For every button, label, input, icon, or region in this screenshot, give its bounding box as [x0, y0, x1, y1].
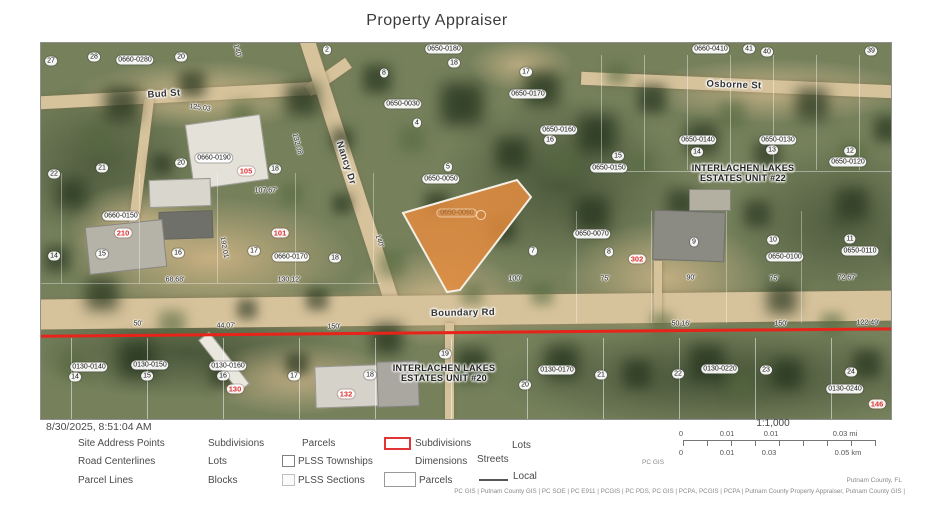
legend-local: Local: [513, 471, 537, 482]
parcel-label-pill: 0650-0160: [540, 126, 577, 135]
parcel-label-pill: 21: [595, 371, 607, 380]
legend-subdivisions: Subdivisions: [208, 438, 264, 449]
parcel-label-pill: 16: [544, 136, 556, 145]
parcel-label-pill: 10: [767, 236, 779, 245]
scale-mi-tick: 0.03 mi: [833, 429, 858, 438]
parcel-label-pill: 0650-0140: [679, 136, 716, 145]
subdivisions-swatch-icon: [384, 437, 411, 450]
parcel-label-pill: 0130-0220: [701, 365, 738, 374]
plss-sections-swatch-icon: [282, 474, 295, 486]
page-title: Property Appraiser: [366, 12, 508, 30]
parcel-label-pill: 0650-0110: [842, 247, 879, 256]
site-address-point-label: 105: [238, 167, 255, 176]
parcel-label-pill: 13: [766, 146, 778, 155]
scale-bar: [683, 440, 876, 446]
legend-lots: Lots: [208, 456, 227, 467]
legend-parcels-layer: Parcels: [419, 475, 452, 486]
parcel-label-pill: 0650-0070: [573, 230, 610, 239]
parcel-label-pill: 15: [612, 152, 624, 161]
site-address-point-label: 132: [338, 390, 355, 399]
parcel-label-pill: 20: [175, 53, 187, 62]
parcel-label-pill: 18: [269, 165, 281, 174]
scale-km-tick: 0.01: [720, 448, 735, 457]
legend-plss-sections: PLSS Sections: [298, 475, 365, 486]
scale-mi-tick: 0: [679, 429, 683, 438]
parcel-label-pill: 21: [96, 164, 108, 173]
credit-county: Putnam County, FL: [846, 477, 902, 484]
map-timestamp: 8/30/2025, 8:51:04 AM: [46, 421, 152, 433]
legend-parcels: Parcels: [302, 438, 335, 449]
parcel-label-pill: 0650-0130: [759, 136, 796, 145]
parcel-label-pill: 2: [323, 46, 331, 55]
dimension-label: 72.67': [838, 275, 857, 282]
dimension-label: 130.12': [278, 277, 301, 284]
parcel-label-pill: 0130-0240: [826, 385, 863, 394]
street-name-label: Osborne St: [706, 79, 762, 92]
site-address-point-label: 101: [272, 229, 289, 238]
parcel-label-pill: 24: [845, 368, 857, 377]
parcel-label-pill: 12: [844, 147, 856, 156]
parcel-label-pill: 9: [690, 238, 698, 247]
parcel-label-pill: 16: [217, 372, 229, 381]
building: [689, 189, 731, 211]
parcel-label-pill: 41: [743, 45, 755, 54]
site-address-point-label: 146: [869, 400, 886, 409]
parcel-label-pill: 0130-0170: [538, 366, 575, 375]
parcel-label-pill: 18: [448, 59, 460, 68]
local-street-line-icon: [479, 479, 508, 481]
parcel-label-pill: 27: [45, 57, 57, 66]
scale-km-tick: 0.05 km: [835, 448, 862, 457]
parcel-label-pill: 20: [175, 159, 187, 168]
parcel-label-pill: 11: [844, 235, 855, 244]
parcel-label-pill: 0660-0410: [692, 45, 729, 54]
parcel-label-pill: 14: [69, 373, 81, 382]
parcel-label-pill: 0650-0150: [590, 164, 627, 173]
scale-mi-tick: 0.01: [764, 429, 779, 438]
parcel-label-pill: 40: [761, 48, 773, 57]
parcel-label-pill: 39: [865, 47, 877, 56]
parcel-label-pill: 0650-0050: [422, 175, 459, 184]
parcel-label-pill: 17: [248, 247, 260, 256]
parcel-label-pill: 0660-0190: [195, 154, 232, 163]
legend-parcel-lines: Parcel Lines: [78, 475, 133, 486]
scale-ratio: 1:1,000: [756, 418, 789, 429]
parcel-label-pill: 16: [172, 249, 184, 258]
parcel-label-pill: 18: [329, 254, 341, 263]
parcel-label-pill: 14: [691, 148, 703, 157]
parcel-label-pill: 7: [529, 247, 537, 256]
parcel-label-pill: 0660-0170: [272, 253, 309, 262]
parcel-label-pill: 0650-0180: [425, 45, 462, 54]
parcel-label-pill: 22: [48, 170, 60, 179]
dimension-label: 50.16': [672, 321, 691, 328]
parcel-label-pill: 20: [519, 381, 531, 390]
parcel-label-pill: 8: [605, 248, 613, 257]
dimension-label: 75': [769, 276, 778, 283]
legend-streets-group: Streets: [477, 454, 509, 465]
attribution-line: PC GIS | Putnam County GIS | PC SOE | PC…: [454, 488, 905, 495]
parcel-label-pill: 17: [520, 68, 532, 77]
parcel-label-pill: 4: [413, 119, 421, 128]
parcel-label-pill: 0650-0100: [766, 253, 803, 262]
legend-plss-townships: PLSS Townships: [298, 456, 373, 467]
dimension-label: 100': [508, 276, 521, 283]
scale-km-tick: 0: [679, 448, 683, 457]
legend-lots-layer: Lots: [512, 440, 531, 451]
parcel-label-pill: 0660-0150: [102, 212, 139, 221]
legend-subdivisions-layer: Subdivisions: [415, 438, 471, 449]
dimension-label: 122.49': [857, 320, 880, 327]
dimension-label: 44.07': [217, 323, 236, 330]
parcel-label-pill: 0650-0030: [384, 100, 421, 109]
subdivision-name-label: INTERLACHEN LAKES ESTATES UNIT #20: [393, 363, 496, 383]
parcel-label-pill: 19: [439, 350, 451, 359]
legend-blocks: Blocks: [208, 475, 237, 486]
dimension-label: 107.67': [255, 188, 278, 195]
parcel-label-pill: 0650-0120: [829, 158, 866, 167]
plss-townships-swatch-icon: [282, 455, 295, 467]
parcel-label-pill: 8: [380, 69, 388, 78]
scale-mi-tick: 0.01: [720, 429, 735, 438]
parcel-label-pill: 23: [760, 366, 772, 375]
parcel-lines: [61, 173, 381, 283]
dimension-label: 68.68': [166, 277, 185, 284]
dimension-label: 150': [774, 321, 787, 328]
dimension-label: 90': [686, 275, 695, 282]
tree-canopy-layer: [41, 43, 43, 45]
site-address-point-label: 210: [115, 229, 132, 238]
parcel-lines: [41, 283, 381, 284]
highlighted-parcel-id: 0650-0060: [436, 209, 477, 218]
parcel-label-pill: 0660-0280: [116, 56, 153, 65]
parcel-label-pill: 0650-0170: [509, 90, 546, 99]
parcel-lines: [576, 211, 876, 323]
parcel-label-pill: 14: [48, 252, 60, 261]
legend-dimensions: Dimensions: [415, 456, 467, 467]
parcel-label-pill: 18: [364, 371, 376, 380]
property-appraiser-page: Property Appraiser: [0, 0, 930, 505]
site-address-point-label: 302: [629, 255, 646, 264]
parcel-label-pill: 28: [88, 53, 100, 62]
map-viewport[interactable]: 0650-0060 27280660-02802020650-018018066…: [40, 42, 892, 420]
street-name-label: Boundary Rd: [431, 307, 495, 319]
parcel-label-pill: 17: [288, 372, 300, 381]
scale-km-tick: 0.03: [762, 448, 777, 457]
parcel-label-pill: 5: [444, 163, 452, 172]
dimension-label: 75': [600, 276, 609, 283]
parcel-label-pill: 0130-0140: [70, 363, 107, 372]
parcel-label-pill: 15: [96, 250, 108, 259]
parcel-label-pill: 0130-0150: [131, 361, 168, 370]
site-address-point-label: 130: [227, 385, 244, 394]
parcel-label-pill: 22: [672, 370, 684, 379]
legend-road-centerlines: Road Centerlines: [78, 456, 155, 467]
parcels-swatch-icon: [384, 472, 416, 487]
parcel-label-pill: 15: [141, 372, 153, 381]
dimension-label: 50': [133, 321, 142, 328]
parcel-label-pill: 0130-0160: [209, 362, 246, 371]
legend-site-address-points: Site Address Points: [78, 438, 165, 449]
credit-pc-gis: PC GIS: [642, 459, 664, 466]
dimension-label: 150': [327, 324, 340, 331]
subdivision-name-label: INTERLACHEN LAKES ESTATES UNIT #22: [692, 163, 795, 183]
street-name-label: Bud St: [147, 87, 181, 100]
